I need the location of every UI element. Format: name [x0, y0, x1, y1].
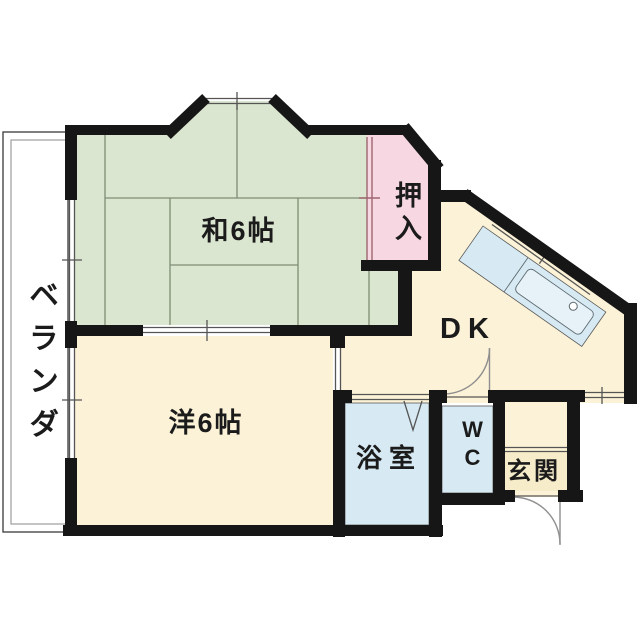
- entrance-door: [513, 497, 560, 545]
- dining-kitchen-label: DK: [426, 314, 510, 345]
- western-room-label: 洋6帖: [136, 409, 276, 438]
- entrance-label: 玄関: [500, 459, 568, 485]
- floor-plan-drawing: [0, 0, 640, 640]
- bathroom-label: 浴室: [344, 444, 434, 472]
- closet-label: 押入: [382, 171, 420, 257]
- toilet-label: WC: [450, 415, 484, 475]
- japanese-room-label: 和6帖: [170, 217, 308, 246]
- floor-plan: ベランダ 和6帖 押入 DK 洋6帖 浴室 WC 玄関: [0, 0, 640, 640]
- veranda-label: ベランダ: [10, 256, 56, 474]
